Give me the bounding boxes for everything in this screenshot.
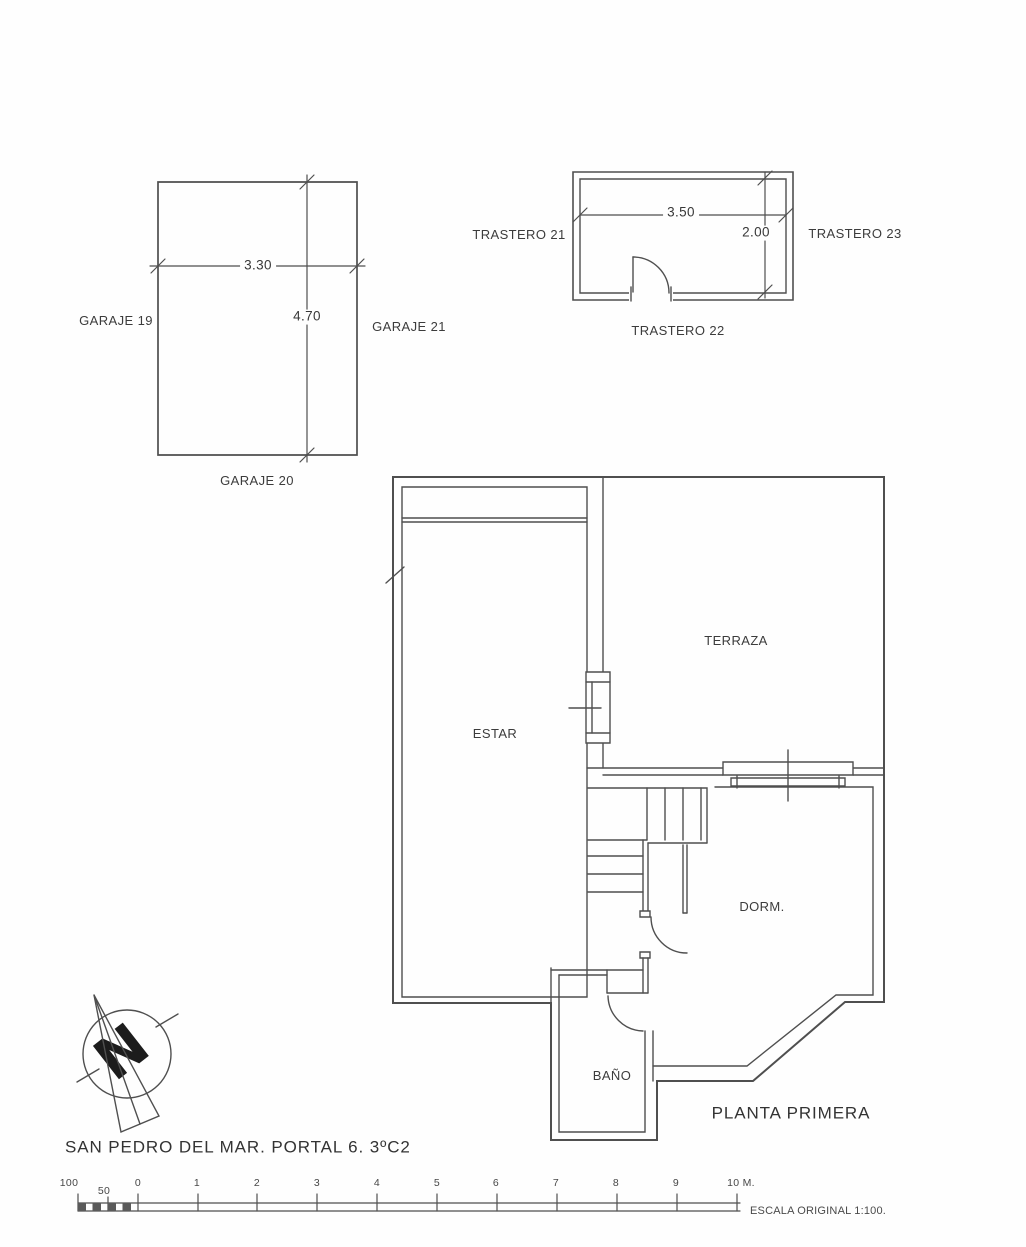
dorm-walls: [653, 787, 873, 1066]
garage-21-label: GARAJE 21: [372, 320, 446, 334]
garage-19-label: GARAJE 19: [79, 314, 153, 328]
estar-room-walls: [402, 487, 587, 997]
garage-width-dim-label: 3.30: [240, 259, 276, 274]
main-floor-plan: [386, 477, 884, 1140]
address-title: SAN PEDRO DEL MAR. PORTAL 6. 3ºC2: [65, 1139, 411, 1158]
garage-height-dim-label: 4.70: [289, 310, 325, 325]
trastero-depth-dim-label: 2.00: [738, 226, 774, 241]
scale-tick-label: 9: [673, 1178, 679, 1190]
scale-tick-label: 7: [553, 1178, 559, 1190]
scale-tick-label: 3: [314, 1178, 320, 1190]
scale-bar: [78, 1194, 740, 1211]
scale-tick-label: 8: [613, 1178, 619, 1190]
room-label-dorm: DORM.: [739, 900, 784, 914]
garage-20-label: GARAJE 20: [220, 474, 294, 488]
terraza-dorm-window: [723, 750, 853, 801]
room-label-estar: ESTAR: [473, 727, 517, 741]
estar-terraza-window: [569, 672, 610, 743]
floor-plan-sheet: N: [0, 0, 1026, 1247]
scale-tick-label: 0: [135, 1178, 141, 1190]
trastero-door-opening: [629, 286, 673, 303]
hall-walls: [640, 840, 687, 993]
floor-plan-drawing: N: [0, 0, 1026, 1247]
outer-wall: [393, 477, 884, 1140]
scale-tick-label: 6: [493, 1178, 499, 1190]
trastero-22-label: TRASTERO 22: [631, 324, 724, 338]
room-label-terraza: TERRAZA: [704, 634, 767, 648]
scale-note: ESCALA ORIGINAL 1:100.: [750, 1205, 886, 1217]
trastero-21-label: TRASTERO 21: [472, 228, 565, 242]
dorm-door-arc: [651, 917, 687, 953]
bano-walls: [551, 968, 653, 1132]
bano-door-arc: [608, 996, 643, 1031]
scale-tick-label: 1: [194, 1178, 200, 1190]
room-label-bano: BAÑO: [593, 1069, 631, 1083]
plan-caption: PLANTA PRIMERA: [712, 1105, 871, 1124]
scale-tick-label: 2: [254, 1178, 260, 1190]
scale-tick-label: 100: [60, 1178, 78, 1190]
scale-tick-label: 4: [374, 1178, 380, 1190]
scale-tick-label: 5: [434, 1178, 440, 1190]
scale-tick-label: 50: [98, 1186, 110, 1198]
compass-north-letter: N: [82, 1010, 162, 1093]
garage-plan: [150, 175, 365, 462]
north-compass-icon: N: [77, 995, 178, 1132]
scale-tick-label: 10 M.: [727, 1178, 755, 1190]
trastero-23-label: TRASTERO 23: [808, 227, 901, 241]
trastero-width-dim-label: 3.50: [663, 206, 699, 221]
